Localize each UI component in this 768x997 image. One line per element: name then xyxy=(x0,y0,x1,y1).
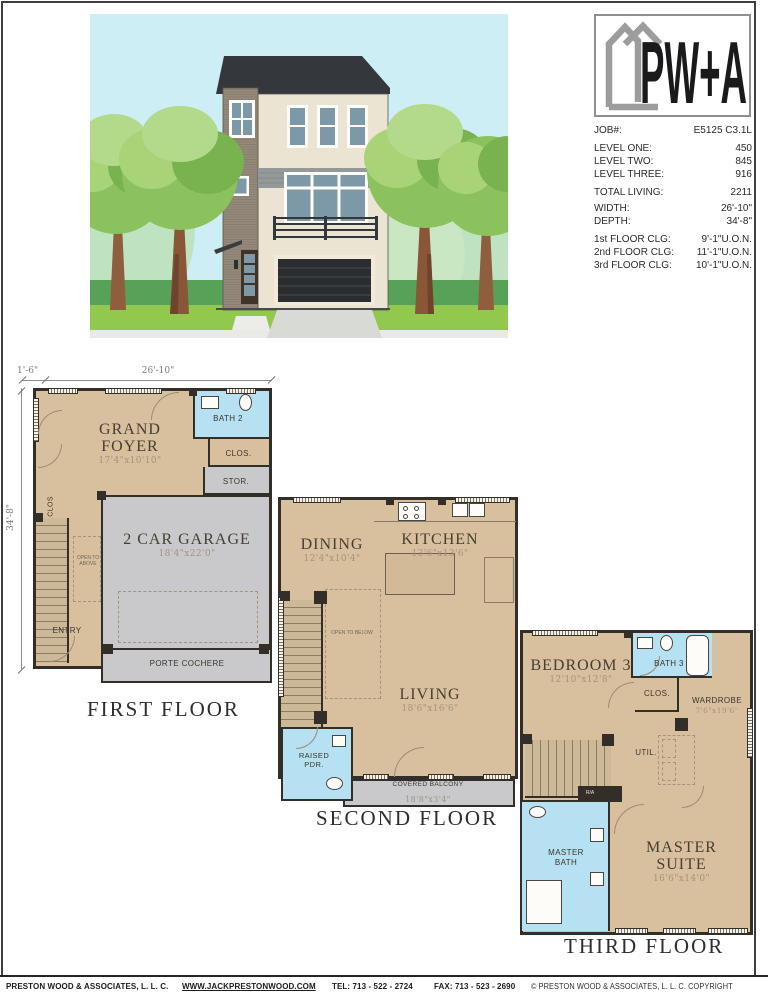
footer-copyright: © PRESTON WOOD & ASSOCIATES, L. L. C. CO… xyxy=(531,982,733,991)
wall-post xyxy=(602,734,614,746)
job-value: 11'-1"U.O.N. xyxy=(697,246,752,259)
house-baseline xyxy=(216,308,390,310)
master-bath-label: MASTER BATH xyxy=(536,848,596,868)
house-elevation-illustration xyxy=(90,14,508,338)
garage-door xyxy=(274,255,375,305)
window-marker xyxy=(33,398,39,442)
wardrobe-label: WARDROBE 7'6"x19'6" xyxy=(684,696,750,715)
window-marker xyxy=(428,774,454,780)
room-dims: 16'6"x14'0" xyxy=(619,874,744,885)
open-to-above-label: OPEN TO ABOVE xyxy=(69,556,107,567)
entry-label: ENTRY xyxy=(37,626,97,636)
job-value: E5125 C3.1L xyxy=(694,124,752,137)
toilet-icon xyxy=(239,394,252,411)
room-dims: 17'4"x10'10" xyxy=(75,456,185,467)
dimension-line xyxy=(21,388,22,669)
driveway xyxy=(267,310,382,338)
dimension-line xyxy=(45,380,272,381)
job-label: 1st FLOOR CLG: xyxy=(594,233,671,246)
balcony-name-label: COVERED BALCONY xyxy=(378,781,478,789)
entry-walk xyxy=(232,316,270,330)
toilet-icon xyxy=(660,635,673,651)
wall-post xyxy=(103,644,113,654)
wall-post xyxy=(97,491,106,500)
pantry-cabinet xyxy=(484,557,514,603)
dryer-dashed-icon xyxy=(662,762,676,781)
washer-dashed-icon xyxy=(662,739,676,758)
sink-icon xyxy=(469,503,485,517)
job-row: DEPTH:34'-8" xyxy=(594,215,752,228)
closet3-label: CLOS. xyxy=(635,689,679,699)
living-label: LIVING 18'6"x16'6" xyxy=(370,687,490,715)
job-row: 3rd FLOOR CLG:10'-1"U.O.N. xyxy=(594,259,752,272)
job-label: 3rd FLOOR CLG: xyxy=(594,259,672,272)
tower-window-top xyxy=(229,100,255,138)
job-value: 34'-8" xyxy=(727,215,752,228)
third-floor-title: THIRD FLOOR xyxy=(564,934,714,959)
job-value: 10'-1"U.O.N. xyxy=(696,259,752,272)
job-label: 2nd FLOOR CLG: xyxy=(594,246,674,259)
window-marker xyxy=(105,388,162,394)
car-bay-dashed-outline xyxy=(118,591,258,643)
job-row: LEVEL THREE:916 xyxy=(594,168,752,181)
window-marker xyxy=(278,597,284,697)
job-row: JOB#:E5125 C3.1L xyxy=(594,124,752,137)
porte-cochere-label: PORTE COCHERE xyxy=(112,659,262,669)
footer-tel: TEL: 713 - 522 - 2724 xyxy=(332,982,413,991)
footer-company: PRESTON WOOD & ASSOCIATES, L. L. C. xyxy=(6,982,168,991)
burner-icon xyxy=(414,514,419,519)
wall-post xyxy=(314,591,327,604)
logo-brand-text: PW+A xyxy=(640,23,747,115)
sink-icon xyxy=(637,637,653,649)
burner-icon xyxy=(414,506,419,511)
job-value: 9'-1"U.O.N. xyxy=(702,233,752,246)
utility-label: UTIL. xyxy=(628,748,664,758)
job-info-table: JOB#:E5125 C3.1L LEVEL ONE:450 LEVEL TWO… xyxy=(594,124,752,272)
window-marker xyxy=(226,388,256,394)
job-label: WIDTH: xyxy=(594,202,630,215)
title-block-footer: PRESTON WOOD & ASSOCIATES, L. L. C. WWW.… xyxy=(0,975,768,997)
elevation-svg xyxy=(90,14,508,338)
window-marker xyxy=(532,630,598,636)
dim-offset-label: 1'-6" xyxy=(17,366,38,376)
dining-label: DINING 12'4"x10'4" xyxy=(282,537,382,565)
bath2-label: BATH 2 xyxy=(195,414,261,424)
dim-width-label: 26'-10" xyxy=(118,366,198,376)
job-row: 2nd FLOOR CLG:11'-1"U.O.N. xyxy=(594,246,752,259)
shower-icon xyxy=(526,880,562,924)
room-name: 2 CAR GARAGE xyxy=(112,532,262,549)
garage-label: 2 CAR GARAGE 18'4"x22'0" xyxy=(112,532,262,560)
job-value: 916 xyxy=(735,168,752,181)
job-row: WIDTH:26'-10" xyxy=(594,202,752,215)
first-floor-title: FIRST FLOOR xyxy=(87,697,217,722)
sink-icon xyxy=(590,872,604,886)
job-value: 450 xyxy=(735,142,752,155)
window-marker xyxy=(48,388,78,394)
burner-icon xyxy=(403,506,408,511)
pwa-logo-svg: PW+A xyxy=(596,16,749,115)
room-name: DINING xyxy=(282,537,382,554)
closet2-label: CLOS xyxy=(48,491,57,521)
wall-post xyxy=(386,497,394,505)
house xyxy=(214,56,390,310)
room-dims: 12'10"x12'8" xyxy=(525,675,637,686)
sink-icon xyxy=(201,396,219,409)
job-label: LEVEL TWO: xyxy=(594,155,653,168)
bath3-label: BATH 3 xyxy=(641,659,697,669)
window-marker xyxy=(483,774,511,780)
sink-icon xyxy=(590,828,604,842)
burner-icon xyxy=(403,514,408,519)
room-dims: 18'6"x16'6" xyxy=(370,704,490,715)
room-name: KITCHEN xyxy=(386,532,494,549)
job-label: JOB#: xyxy=(594,124,622,137)
wall-post xyxy=(280,591,290,601)
return-air-label: R/A xyxy=(580,791,600,797)
closet1-label: CLOS. xyxy=(208,449,269,459)
room-name: WARDROBE xyxy=(684,696,750,706)
raised-pdr-label: RAISED PDR. xyxy=(288,751,340,770)
balcony-dims-label: 18'8"x3'4" xyxy=(378,795,478,805)
job-value: 845 xyxy=(735,155,752,168)
sink-icon xyxy=(452,503,468,517)
toilet-icon xyxy=(326,777,343,790)
job-row: TOTAL LIVING:2211 xyxy=(594,186,752,199)
job-value: 2211 xyxy=(730,186,752,199)
bedroom3-label: BEDROOM 3 12'10"x12'8" xyxy=(525,658,637,686)
job-label: LEVEL THREE: xyxy=(594,168,664,181)
window-marker xyxy=(363,774,389,780)
wall-post xyxy=(259,644,269,654)
job-label: DEPTH: xyxy=(594,215,631,228)
room-name: BEDROOM 3 xyxy=(525,658,637,675)
dimension-line xyxy=(22,380,45,381)
room-name: GRAND FOYER xyxy=(75,422,185,456)
footer-fax: FAX: 713 - 523 - 2690 xyxy=(434,982,515,991)
open-to-below-outline xyxy=(325,589,381,699)
second-floor-title: SECOND FLOOR xyxy=(316,806,476,831)
counter-line xyxy=(374,521,516,522)
storage-label: STOR. xyxy=(203,477,269,487)
third-floor-plan: BEDROOM 3 12'10"x12'8" BATH 3 CLOS. WARD… xyxy=(520,628,757,940)
dim-depth-label: 34'-8" xyxy=(6,504,16,531)
third-floor-windows xyxy=(287,105,368,148)
first-floor-plan: 1'-6" 26'-10" 34'-8" xyxy=(33,386,274,686)
job-row: 1st FLOOR CLG:9'-1"U.O.N. xyxy=(594,233,752,246)
toilet-icon xyxy=(529,806,546,818)
stairs xyxy=(281,600,323,727)
open-to-above-outline xyxy=(73,536,101,602)
room-dims: 13'6"x13'6" xyxy=(386,549,494,560)
grand-foyer-label: GRAND FOYER 17'4"x10'10" xyxy=(75,422,185,466)
wall-post xyxy=(522,734,532,744)
footer-website-link[interactable]: WWW.JACKPRESTONWOOD.COM xyxy=(182,982,316,991)
pwa-logo: PW+A xyxy=(594,14,751,117)
open-to-below-label: OPEN TO BELOW xyxy=(330,631,374,637)
room-name: LIVING xyxy=(370,687,490,704)
room-dims: 12'4"x10'4" xyxy=(282,554,382,565)
job-row: LEVEL TWO:845 xyxy=(594,155,752,168)
window-marker xyxy=(455,497,510,503)
room-dims: 18'4"x22'0" xyxy=(112,549,262,560)
job-label: TOTAL LIVING: xyxy=(594,186,663,199)
job-row: LEVEL ONE:450 xyxy=(594,142,752,155)
job-label: LEVEL ONE: xyxy=(594,142,652,155)
plan-sheet-page: PW+A JOB#:E5125 C3.1L LEVEL ONE:450 LEVE… xyxy=(0,0,768,997)
room-name: MASTER SUITE xyxy=(619,840,744,874)
wall-post xyxy=(438,497,446,505)
job-value: 26'-10" xyxy=(721,202,752,215)
entry-door xyxy=(241,250,258,304)
sink-icon xyxy=(332,735,346,747)
wall-post xyxy=(675,718,688,731)
wall-post xyxy=(34,513,43,522)
window-marker xyxy=(747,708,753,758)
master-suite-label: MASTER SUITE 16'6"x14'0" xyxy=(619,840,744,884)
room-dims: 7'6"x19'6" xyxy=(684,706,750,715)
wall-post xyxy=(314,711,327,724)
kitchen-label: KITCHEN 13'6"x13'6" xyxy=(386,532,494,560)
stove-icon xyxy=(398,502,426,521)
wall-post xyxy=(624,630,632,638)
window-marker xyxy=(293,497,341,503)
second-floor-plan: DINING 12'4"x10'4" KITCHEN 13'6"x13'6" L… xyxy=(278,495,520,810)
wall-post xyxy=(189,388,197,396)
porch-lamp-icon xyxy=(234,260,238,269)
tub-icon xyxy=(686,635,709,676)
